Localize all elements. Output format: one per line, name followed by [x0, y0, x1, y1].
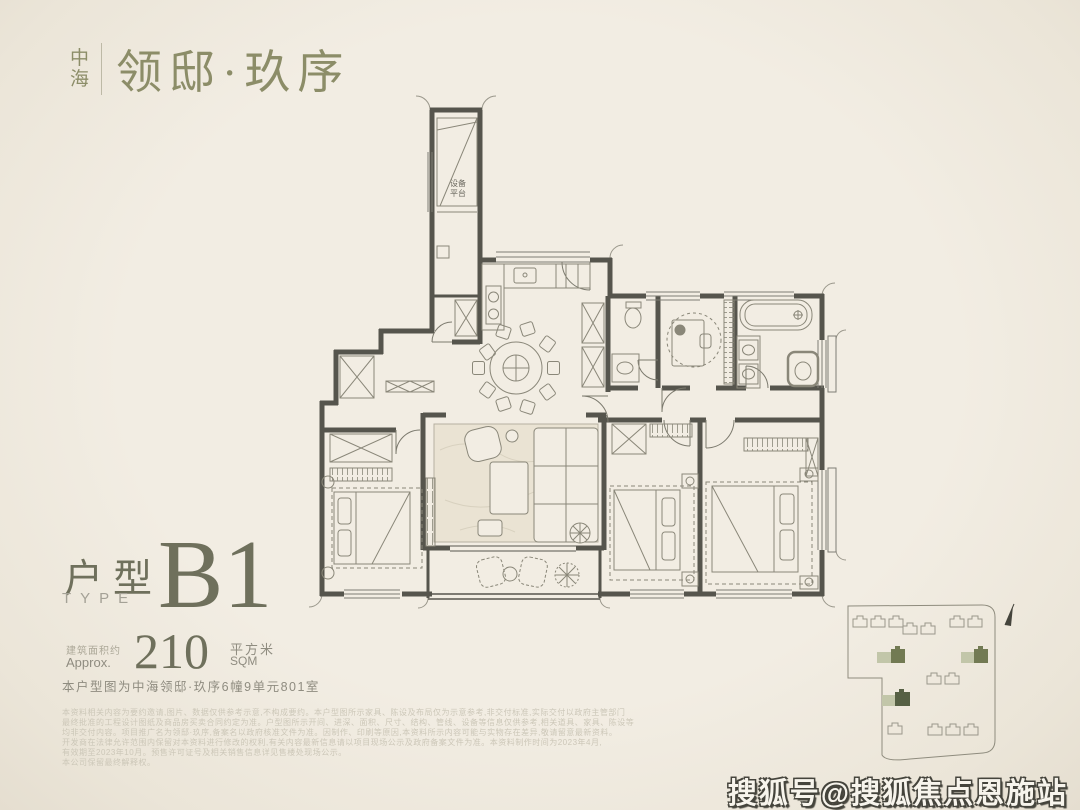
area-label-en: Approx. — [66, 655, 111, 670]
double-vanity — [737, 336, 760, 388]
disclaimer-line: 均非交付内容。项目推广名为领邸·玖序,备案名以政府核准文件为准。因制作、印刷等原… — [62, 728, 662, 738]
area-unit-en: SQM — [230, 654, 257, 668]
unit-type-en: TYPE — [62, 590, 137, 607]
coffee-table — [490, 462, 528, 514]
site-buildings-highlighted — [877, 646, 988, 706]
site-buildings-outline — [853, 616, 982, 735]
equipment-platform-label-line1: 设备 — [450, 178, 466, 188]
balcony-chair — [475, 555, 507, 588]
area-value: 210 — [134, 622, 209, 680]
tv-console — [426, 478, 435, 546]
disclaimer-line: 有效期至2023年10月。预售许可证号及相关销售信息详见售楼处现场公示。 — [62, 748, 662, 758]
north-arrow-icon — [1005, 604, 1014, 626]
balcony-walls — [428, 546, 600, 599]
utility-closet — [455, 300, 477, 336]
dining-table — [473, 321, 560, 414]
unit-location-note: 本户型图为中海领邸·玖序6幢9单元801室 — [62, 676, 320, 695]
equipment-platform: 设备 平台 — [437, 118, 477, 258]
bedroom-middle — [610, 424, 698, 586]
brand-stacked-bottom: 海 — [70, 69, 89, 90]
floorplan-flyer-page: 中 海 领邸·玖序 — [0, 0, 1080, 810]
living-room — [426, 424, 598, 546]
disclaimer-text: 本资料相关内容为要约邀请,图片、数据仅供参考示意,不构成要约。本户型图所示家具、… — [62, 708, 662, 768]
balcony — [475, 555, 579, 588]
toilet — [788, 352, 818, 386]
study-room — [667, 300, 734, 384]
equipment-platform-label-line2: 平台 — [450, 188, 466, 198]
disclaimer-line: 本公司保留最终解释权。 — [62, 758, 662, 768]
powder-room — [612, 302, 641, 382]
watermark-text: 搜狐号@搜狐焦点恩施站 — [728, 770, 1068, 810]
floor-plan-drawing: 设备 平台 — [290, 95, 850, 625]
bed — [614, 490, 680, 570]
brand-logo-stacked: 中 海 — [70, 48, 89, 90]
brand-logo: 中 海 领邸·玖序 — [70, 36, 350, 102]
disclaimer-line: 最终批准的工程设计图纸及商品房买卖合同约定为准。户型图所示开间、进深、面积、尺寸… — [62, 718, 662, 728]
balcony-chair — [517, 556, 548, 589]
unit-type-code: B1 — [158, 526, 272, 624]
unit-info: 户型 TYPE B1 建筑面积约 Approx. 210 平方米 SQM — [62, 540, 362, 684]
disclaimer-line: 开发商在法律允许范围内保留对本资料进行修改的权利,有关内容最新信息请以项目现场公… — [62, 738, 662, 748]
logo-divider — [101, 43, 102, 95]
master-bedroom — [706, 438, 818, 589]
disclaimer-line: 本资料相关内容为要约邀请,图片、数据仅供参考示意,不构成要约。本户型图所示家具、… — [62, 708, 662, 718]
unit-type-row: 户型 TYPE B1 — [62, 540, 362, 632]
master-bathroom — [737, 300, 818, 388]
brand-name: 领邸·玖序 — [116, 36, 350, 102]
bed — [712, 486, 798, 572]
kitchen — [482, 264, 590, 330]
brand-stacked-top: 中 — [70, 48, 89, 69]
site-key-plan — [838, 588, 1028, 778]
